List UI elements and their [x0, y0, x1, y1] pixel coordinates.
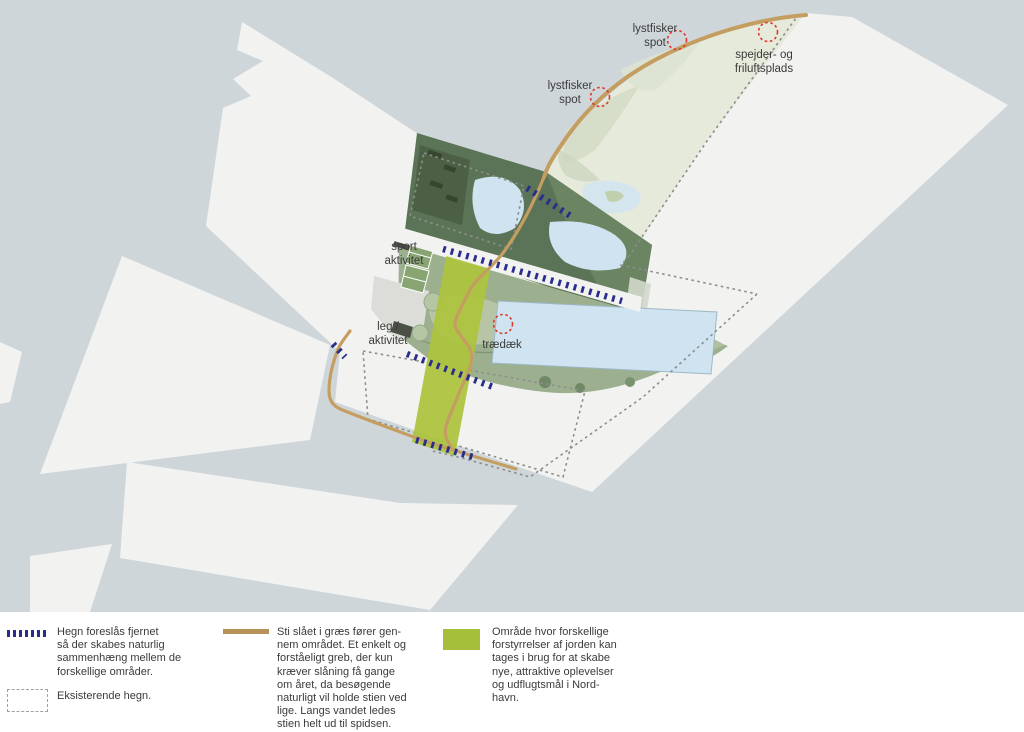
label-spejder-friluftsplads: spejder- og friluftsplads [718, 49, 810, 76]
legend-text-fence-removed: Hegn foreslås fjernet så der skabes natu… [57, 626, 232, 679]
legend-swatch-disturbance-area [443, 629, 480, 650]
label-traedaek: trædæk [462, 339, 542, 353]
label-leg-aktivitet: leg / aktivitet [348, 321, 428, 348]
legend-text-disturbance-area: Område hvor forskellige forstyrrelser af… [492, 626, 652, 705]
legend-text-grass-path: Sti slået i græs fører gen- nem området.… [277, 626, 437, 732]
site-plan-page: lystfisker spot spejder- og friluftsplad… [0, 0, 1024, 732]
legend-text-existing-fence: Eksisterende hegn. [57, 690, 232, 703]
legend-swatch-grass-path [223, 629, 269, 634]
label-lystfisker-spot-2: lystfisker spot [530, 80, 610, 107]
tree-clump [539, 376, 551, 388]
label-lystfisker-spot-1: lystfisker spot [615, 23, 695, 50]
label-sport-aktivitet: sport aktivitet [364, 241, 444, 268]
site-plan-map [0, 0, 1024, 732]
legend-swatch-existing-fence [7, 689, 48, 712]
legend-swatch-fence-removed [7, 630, 48, 637]
tree-clump [625, 377, 635, 387]
traedaek-basin [492, 301, 717, 374]
